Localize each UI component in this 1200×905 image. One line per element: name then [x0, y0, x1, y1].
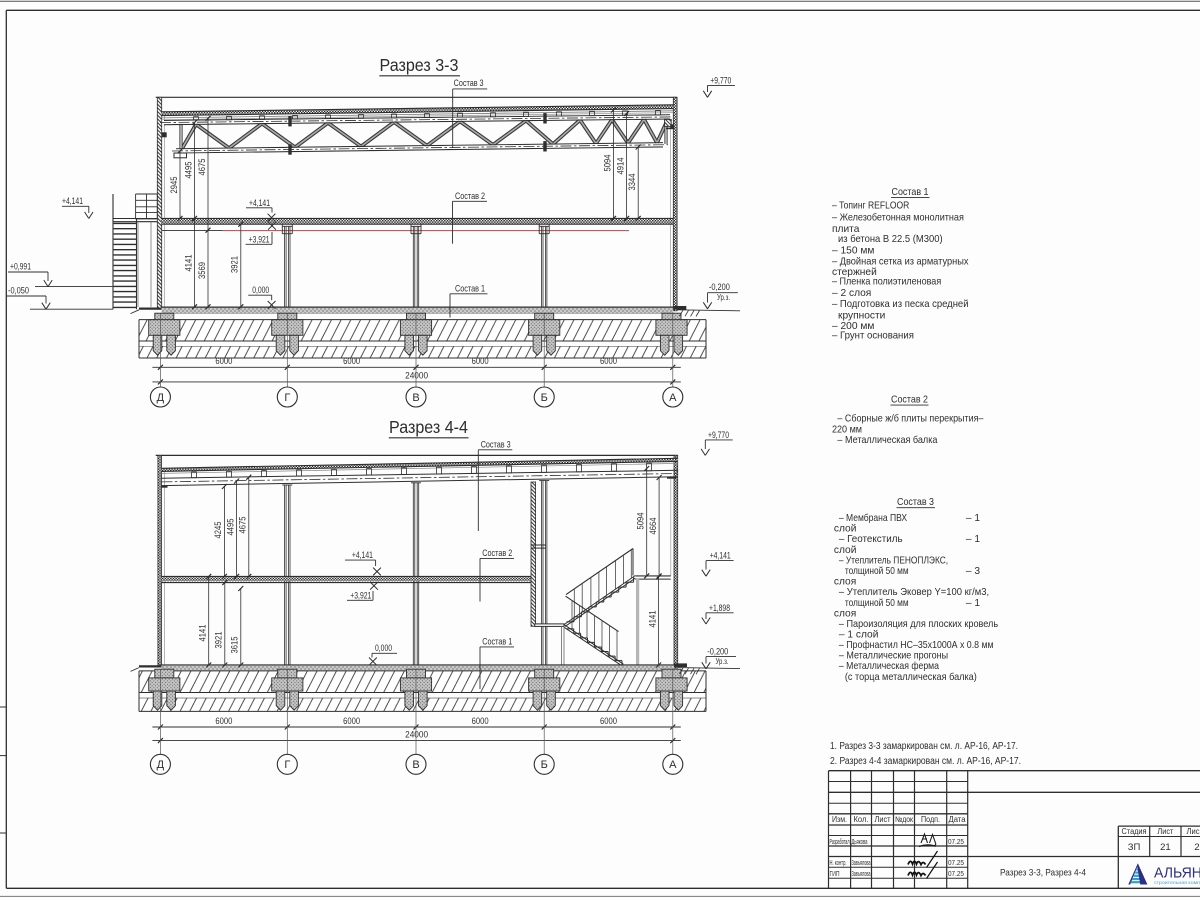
svg-text:– Металлическая ферма: – Металлическая ферма [839, 660, 939, 672]
svg-text:Лист: Лист [1157, 827, 1173, 836]
svg-text:Состав 1: Состав 1 [482, 636, 512, 647]
svg-text:ГИП: ГИП [830, 869, 840, 878]
svg-text:Б: Б [541, 392, 548, 404]
svg-text:– 1: – 1 [966, 534, 980, 545]
svg-text:из бетона В 22.5 (М300): из бетона В 22.5 (М300) [838, 233, 943, 245]
svg-text:4141: 4141 [647, 611, 658, 628]
svg-text:– Утеплитель ПЕНОПЛЭКС,: – Утеплитель ПЕНОПЛЭКС, [839, 556, 948, 567]
svg-text:– Железобетонная монолитная: – Железобетонная монолитная [832, 211, 964, 223]
svg-text:0,000: 0,000 [375, 643, 392, 654]
svg-text:Б: Б [541, 759, 548, 771]
svg-text:толщиной 50 мм: толщиной 50 мм [845, 566, 909, 577]
svg-text:В: В [412, 759, 419, 771]
svg-text:Подп.: Подп. [921, 815, 940, 824]
svg-text:6000: 6000 [215, 356, 232, 367]
svg-text:– 150 мм: – 150 мм [832, 245, 874, 256]
svg-text:ЗП: ЗП [1128, 842, 1141, 853]
svg-text:+4,141: +4,141 [62, 196, 83, 207]
svg-text:6000: 6000 [472, 356, 489, 367]
svg-text:Разрез 4-4: Разрез 4-4 [389, 417, 468, 437]
svg-text:0,000: 0,000 [252, 285, 269, 296]
svg-text:Дата: Дата [949, 815, 967, 824]
svg-text:Д: Д [157, 392, 165, 404]
svg-text:крупности: крупности [838, 310, 885, 321]
svg-text:Состав 3: Состав 3 [481, 439, 511, 450]
svg-text:Состав 3: Состав 3 [897, 496, 934, 508]
svg-text:Изм.: Изм. [832, 815, 847, 824]
svg-text:07.25: 07.25 [948, 869, 964, 878]
svg-text:– Подготовка из песка средней: – Подготовка из песка средней [832, 299, 969, 310]
svg-text:220 мм: 220 мм [832, 425, 862, 436]
svg-text:Завьялова: Завьялова [852, 869, 871, 878]
svg-text:Ур.з.: Ур.з. [717, 292, 730, 302]
svg-text:Д: Д [157, 759, 165, 771]
svg-text:4914: 4914 [615, 158, 626, 175]
svg-text:3921: 3921 [230, 256, 241, 273]
svg-text:+0,991: +0,991 [10, 262, 31, 273]
svg-text:– Утеплитель Эковер Y=100 кг/: – Утеплитель Эковер Y=100 кг/м3, [839, 587, 989, 598]
svg-text:– 1: – 1 [966, 513, 980, 524]
svg-text:4675: 4675 [238, 517, 249, 534]
svg-text:слой: слой [834, 545, 857, 556]
svg-text:4495: 4495 [225, 519, 236, 536]
svg-text:Ур.з.: Ур.з. [716, 656, 729, 666]
svg-text:Состав 1: Состав 1 [892, 186, 929, 198]
svg-text:Г: Г [284, 392, 290, 404]
svg-text:4141: 4141 [183, 255, 194, 272]
svg-text:21: 21 [1160, 842, 1171, 853]
svg-text:– 1: – 1 [966, 598, 980, 609]
svg-text:5094: 5094 [636, 513, 647, 530]
svg-text:– Мембрана ПВХ: – Мембрана ПВХ [839, 512, 907, 524]
svg-text:+4,141: +4,141 [352, 550, 373, 561]
svg-text:– Пароизоляция для плоских кр: – Пароизоляция для плоских кровель [839, 619, 998, 630]
svg-text:4675: 4675 [197, 159, 208, 176]
svg-text:Состав 3: Состав 3 [454, 78, 484, 89]
svg-text:3344: 3344 [627, 174, 638, 191]
svg-text:– 3: – 3 [966, 566, 980, 577]
svg-text:-0,050: -0,050 [8, 286, 29, 297]
svg-text:07.25: 07.25 [948, 837, 964, 846]
svg-text:– Металлическая балка: – Металлическая балка [837, 434, 937, 446]
svg-text:4664: 4664 [648, 518, 659, 535]
svg-text:Состав 2: Состав 2 [482, 548, 512, 559]
svg-text:(с торца металлическая балка): (с торца металлическая балка) [845, 671, 977, 683]
svg-text:3615: 3615 [230, 637, 241, 654]
svg-text:4141: 4141 [198, 625, 209, 642]
svg-text:слоя: слоя [834, 577, 856, 588]
svg-text:– Металлические прогоны: – Металлические прогоны [839, 650, 948, 661]
svg-text:+4,141: +4,141 [710, 551, 731, 562]
svg-text:– Пленка полиэтиленовая: – Пленка полиэтиленовая [832, 277, 941, 288]
svg-text:слой: слой [834, 524, 857, 535]
svg-text:Н. контр.: Н. контр. [830, 858, 847, 867]
svg-text:А: А [669, 392, 677, 404]
svg-text:– Геотекстиль: – Геотекстиль [839, 534, 903, 545]
svg-text:2: 2 [1194, 842, 1199, 853]
svg-text:Лист: Лист [875, 815, 891, 824]
svg-text:2945: 2945 [169, 177, 180, 194]
svg-text:+9,770: +9,770 [710, 75, 731, 86]
svg-text:+9,770: +9,770 [708, 430, 729, 441]
svg-text:1. Разрез 3-3 замаркирован см.: 1. Разрез 3-3 замаркирован см. л. АР-16,… [830, 741, 1018, 752]
svg-text:6000: 6000 [343, 716, 360, 727]
svg-text:А: А [669, 759, 677, 771]
svg-text:+3,921: +3,921 [350, 590, 371, 601]
svg-text:строительная комп: строительная комп [1154, 881, 1200, 886]
svg-text:Разрез 3-3, Разрез 4-4: Разрез 3-3, Разрез 4-4 [1000, 868, 1086, 879]
svg-text:+3,921: +3,921 [249, 234, 270, 245]
svg-text:В: В [412, 392, 419, 404]
svg-text:Лис: Лис [1187, 827, 1200, 836]
svg-text:2. Разрез 4-4 замаркирован см.: 2. Разрез 4-4 замаркирован см. л. АР-16,… [830, 756, 1021, 767]
svg-text:4245: 4245 [213, 522, 224, 539]
svg-text:3921: 3921 [214, 632, 225, 649]
svg-text:Кол.: Кол. [854, 815, 869, 824]
svg-text:Стадия: Стадия [1122, 827, 1147, 836]
svg-text:Разрез 3-3: Разрез 3-3 [380, 55, 459, 75]
svg-text:6000: 6000 [343, 356, 360, 367]
svg-text:Состав 2: Состав 2 [455, 191, 485, 202]
svg-text:толщиной 50 мм: толщиной 50 мм [845, 598, 909, 609]
svg-text:– Грунт основания: – Грунт основания [832, 330, 914, 341]
svg-text:6000: 6000 [472, 716, 489, 727]
svg-text:6000: 6000 [215, 716, 232, 727]
svg-text:24000: 24000 [405, 729, 428, 740]
svg-text:+4,141: +4,141 [249, 198, 270, 209]
svg-text:3569: 3569 [197, 262, 208, 279]
svg-text:– Топинг REFLOOR: – Топинг REFLOOR [832, 201, 909, 212]
svg-text:Состав 2: Состав 2 [891, 394, 928, 406]
svg-text:Завьялова: Завьялова [852, 858, 871, 867]
svg-text:+1,898: +1,898 [709, 603, 730, 614]
svg-text:Г: Г [284, 759, 290, 771]
svg-text:– 2 слоя: – 2 слоя [832, 288, 871, 299]
svg-text:4495: 4495 [183, 162, 194, 179]
svg-text:– Сборные ж/б плиты перекрыти: – Сборные ж/б плиты перекрытия– [837, 412, 983, 424]
svg-text:– 1 слой: – 1 слой [839, 629, 879, 640]
svg-text:Состав 1: Состав 1 [455, 283, 485, 294]
svg-text:5094: 5094 [602, 155, 613, 172]
svg-text:Разработал: Разработал [830, 837, 850, 846]
svg-text:слоя: слоя [834, 608, 856, 619]
svg-text:24000: 24000 [405, 371, 428, 382]
svg-text:6000: 6000 [600, 356, 617, 367]
svg-text:Дьякова: Дьякова [852, 837, 868, 846]
svg-text:– Профнастил НС–35х1000А х 0.: – Профнастил НС–35х1000А х 0.8 мм [839, 639, 994, 651]
svg-text:6000: 6000 [600, 716, 617, 727]
svg-text:07.25: 07.25 [948, 858, 964, 867]
svg-text:№док: №док [895, 815, 913, 824]
svg-text:АЛЬЯН: АЛЬЯН [1154, 866, 1200, 882]
